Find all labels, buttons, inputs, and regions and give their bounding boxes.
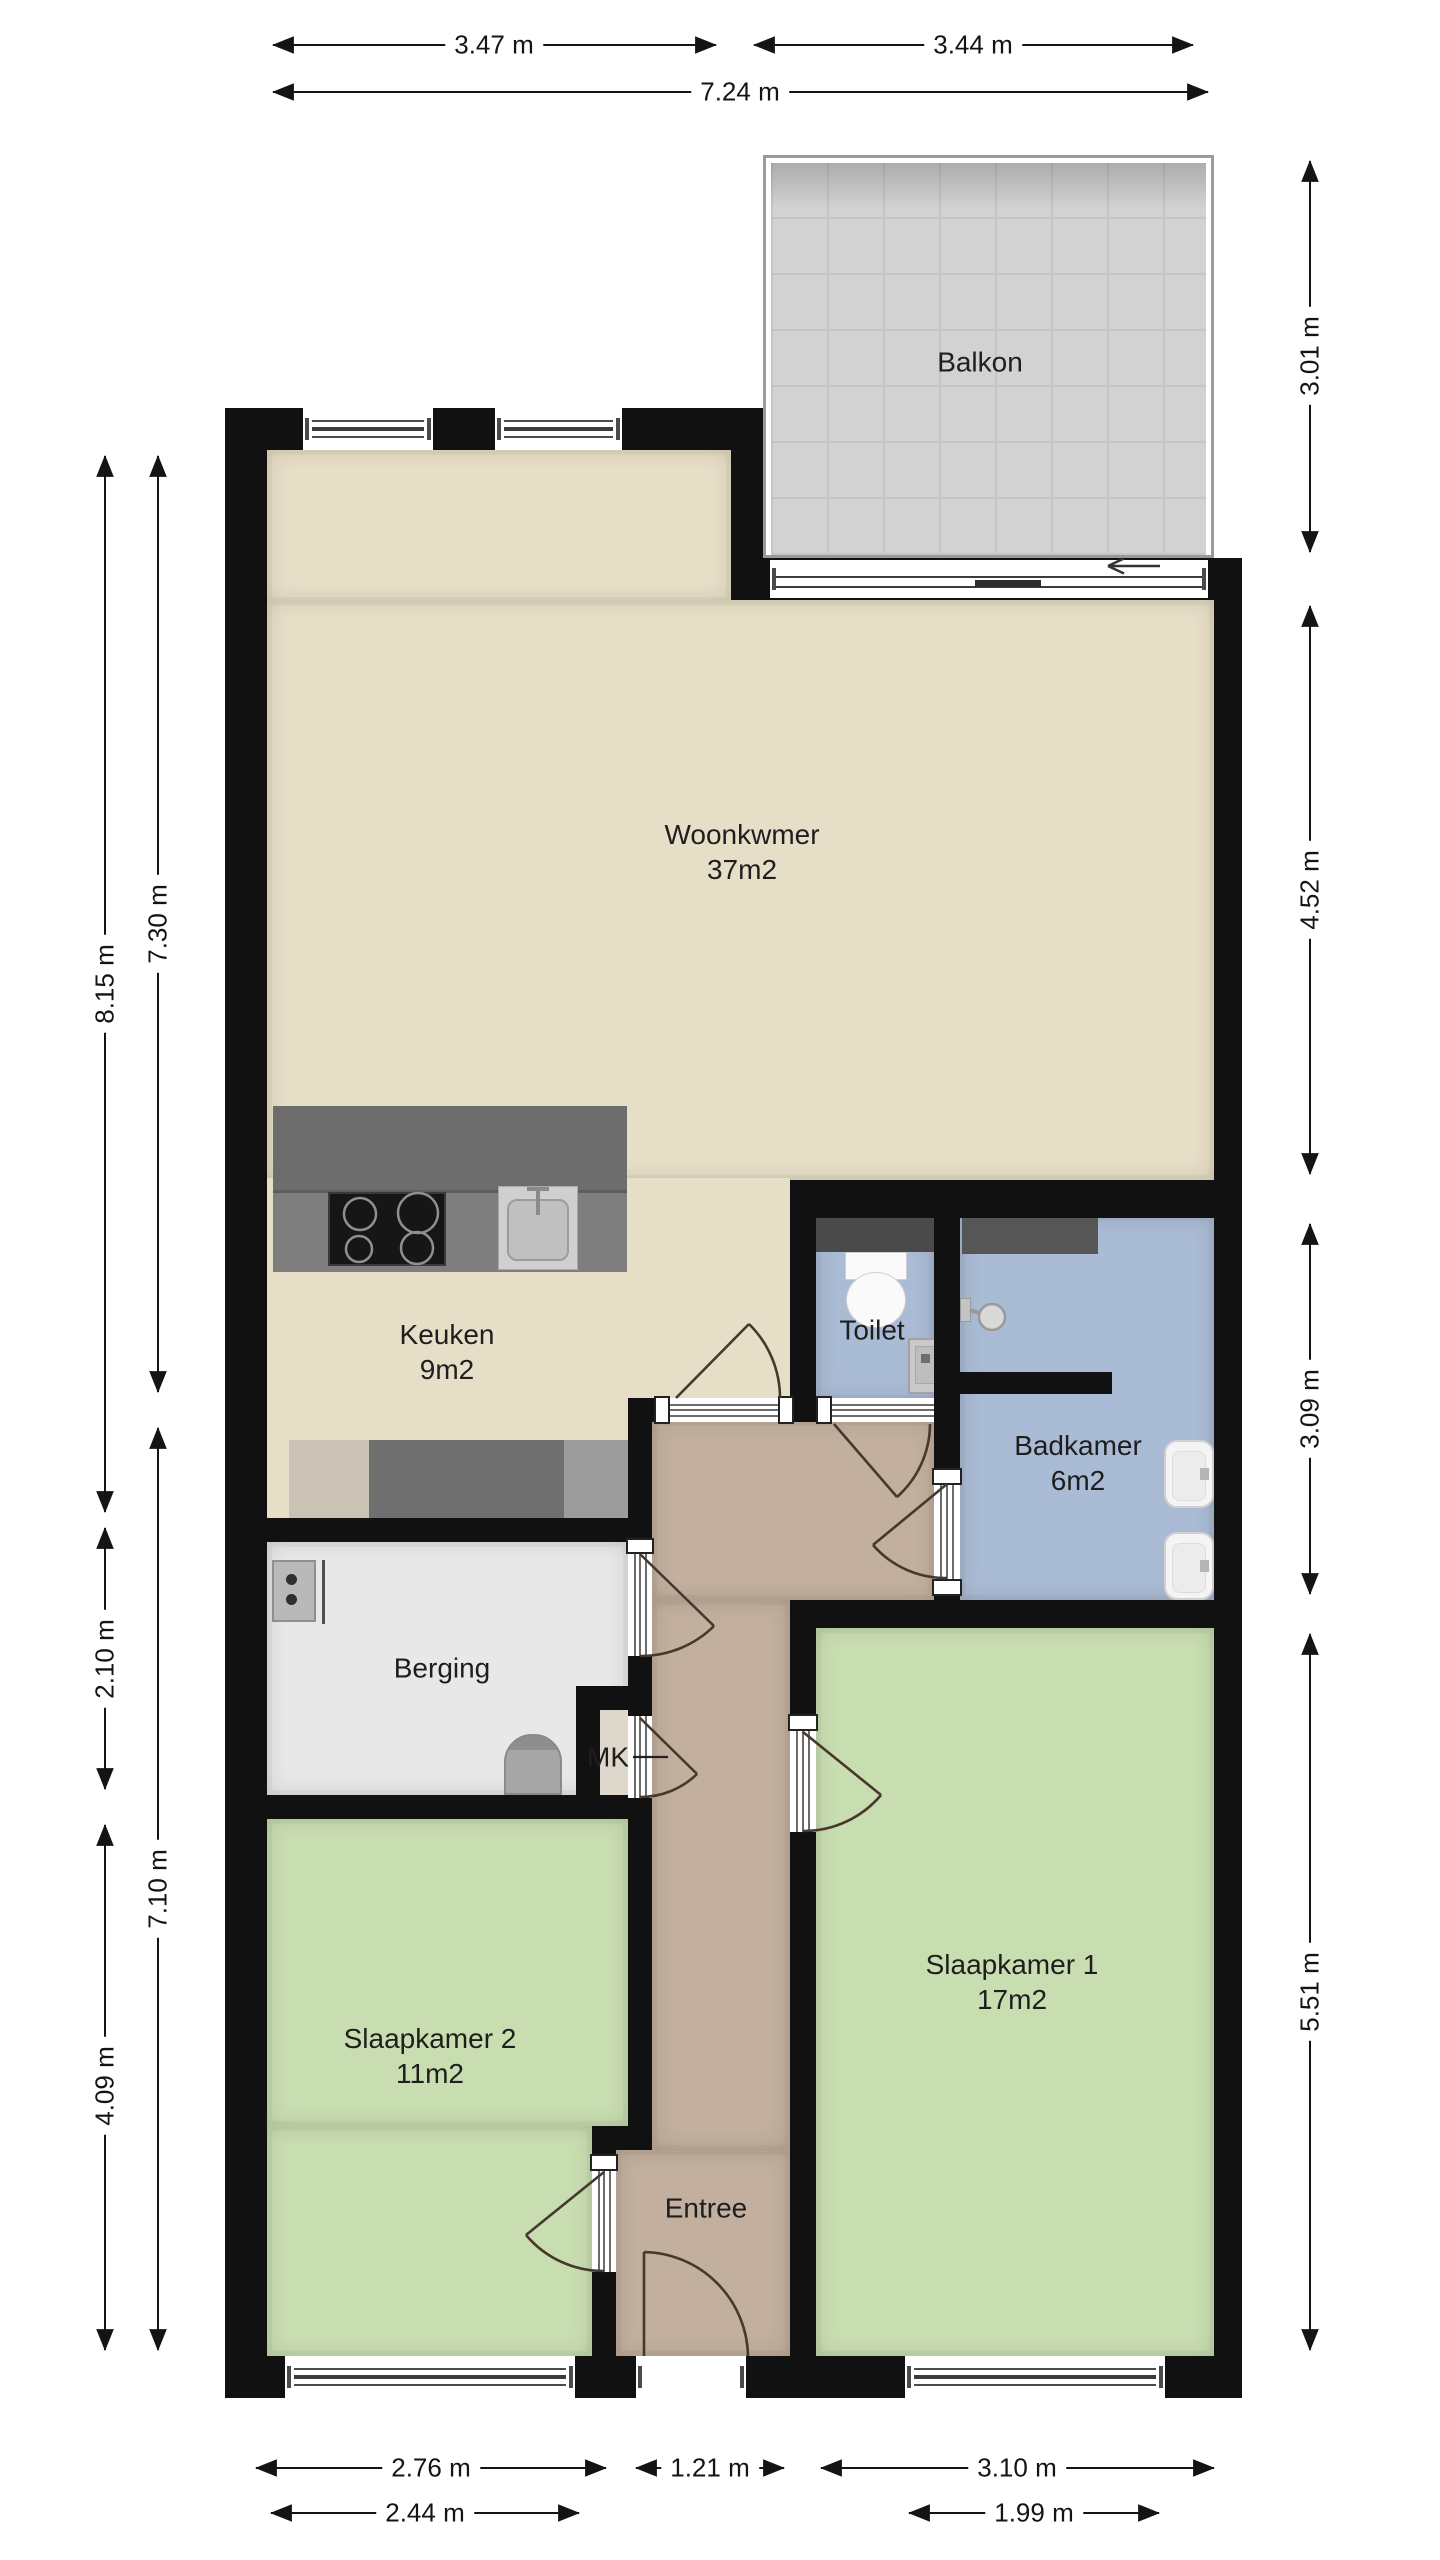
dim-label: 3.10 m: [968, 2453, 1066, 2484]
dim-label: 7.30 m: [143, 875, 174, 973]
room-label-berging: Berging: [394, 1651, 491, 1686]
dim-label: 3.09 m: [1295, 1360, 1326, 1458]
room-label-woonkamer: Woonkwmer 37m2: [664, 817, 819, 887]
door-jamb: [932, 1579, 962, 1596]
room-name: Slaapkamer 2: [344, 2023, 517, 2054]
bathroom-basin: [1164, 1440, 1214, 1508]
faucet-icon: [536, 1189, 540, 1215]
washer-panel: [322, 1560, 325, 1624]
kitchen-floor: [267, 1440, 289, 1518]
door-jamb: [590, 2154, 618, 2171]
shower-bracket: [960, 1298, 971, 1322]
balcony-sliding-door: [770, 560, 1208, 598]
wall-storage-bottom: [225, 1795, 652, 1819]
kitchen-counter: [289, 1440, 628, 1518]
bathroom-cabinet: [962, 1216, 1098, 1254]
living-room-floor: [267, 600, 1214, 1180]
window-living-2: [495, 408, 622, 450]
wall-storage-top: [225, 1518, 652, 1542]
door-mk: [628, 1716, 652, 1798]
wall-bedroom1-top: [790, 1600, 1214, 1628]
room-area: 17m2: [977, 1984, 1047, 2015]
room-area: 37m2: [707, 854, 777, 885]
room-area: 6m2: [1051, 1465, 1105, 1496]
dim-label: 3.47 m: [445, 30, 543, 61]
hall-floor: [652, 1600, 790, 2150]
washer-icon: [272, 1560, 316, 1622]
wall-exterior-right: [1214, 558, 1242, 2398]
door-jamb: [816, 1396, 832, 1424]
dim-label: 7.24 m: [691, 77, 789, 108]
room-label-keuken: Keuken 9m2: [400, 1317, 495, 1387]
kitchen-sink: [498, 1186, 578, 1270]
room-name: Slaapkamer 1: [926, 1949, 1099, 1980]
room-name: MK: [587, 1742, 629, 1773]
door-living: [668, 1398, 780, 1422]
door-jamb: [654, 1396, 670, 1424]
room-label-entree: Entree: [665, 2191, 748, 2226]
door-toilet: [830, 1398, 934, 1422]
wall-toilet-top: [790, 1180, 1214, 1218]
room-label-badkamer: Badkamer 6m2: [1014, 1428, 1142, 1498]
room-name: Keuken: [400, 1319, 495, 1350]
cooktop-icon: [328, 1192, 446, 1266]
balcony-shadow: [771, 163, 1206, 209]
window-bedroom2: [285, 2356, 575, 2398]
wall-exterior-left: [225, 408, 267, 2398]
room-name: Balkon: [937, 347, 1023, 378]
door-bedroom1: [790, 1730, 816, 1832]
dim-label: 2.44 m: [376, 2498, 474, 2529]
door-jamb: [626, 1538, 654, 1554]
dim-label: 4.09 m: [90, 2037, 121, 2135]
dim-label: 3.01 m: [1295, 307, 1326, 405]
room-name: Berging: [394, 1653, 491, 1684]
window-bedroom1: [905, 2356, 1165, 2398]
room-name: Woonkwmer: [664, 819, 819, 850]
living-room-floor: [267, 450, 731, 602]
door-bedroom2: [592, 2170, 616, 2272]
room-area: 11m2: [396, 2058, 464, 2089]
door-front: [636, 2356, 746, 2398]
wall-shower: [960, 1372, 1112, 1394]
door-jamb: [932, 1468, 962, 1485]
dim-label: 7.10 m: [143, 1840, 174, 1938]
boiler-icon: [504, 1734, 562, 1795]
hall-floor: [652, 1420, 934, 1600]
bedroom2-floor: [267, 2126, 592, 2356]
hall-floor: [616, 2150, 790, 2356]
dim-label: 5.51 m: [1295, 1943, 1326, 2041]
wall-toilet-west: [790, 1180, 816, 1422]
dim-label: 1.99 m: [985, 2498, 1083, 2529]
dim-label: 1.21 m: [661, 2453, 759, 2484]
room-label-toilet: Toilet: [839, 1313, 904, 1348]
door-storage: [628, 1552, 652, 1656]
room-label-balkon: Balkon: [937, 345, 1023, 380]
room-label-slaapkamer1: Slaapkamer 1 17m2: [926, 1947, 1099, 2017]
room-name: Entree: [665, 2193, 748, 2224]
dim-label: 8.15 m: [90, 935, 121, 1033]
room-label-mk: MK: [587, 1740, 629, 1775]
room-area: 9m2: [420, 1354, 474, 1385]
room-label-slaapkamer2: Slaapkamer 2 11m2: [344, 2021, 517, 2091]
wall-step: [731, 408, 763, 600]
kitchen-floor: [267, 1398, 628, 1442]
dim-label: 2.10 m: [90, 1610, 121, 1708]
toilet-shelf: [816, 1216, 934, 1252]
dim-label: 2.76 m: [382, 2453, 480, 2484]
bathroom-basin: [1164, 1532, 1214, 1600]
door-jamb: [788, 1714, 818, 1731]
dim-label: 3.44 m: [924, 30, 1022, 61]
floor-plan: 3.47 m 3.44 m 7.24 m 2.76 m 1.21 m 3.10 …: [0, 0, 1440, 2560]
door-bathroom: [934, 1484, 960, 1580]
door-jamb: [778, 1396, 794, 1424]
dim-label: 4.52 m: [1295, 841, 1326, 939]
room-name: Badkamer: [1014, 1430, 1142, 1461]
room-name: Toilet: [839, 1315, 904, 1346]
window-living-1: [303, 408, 433, 450]
